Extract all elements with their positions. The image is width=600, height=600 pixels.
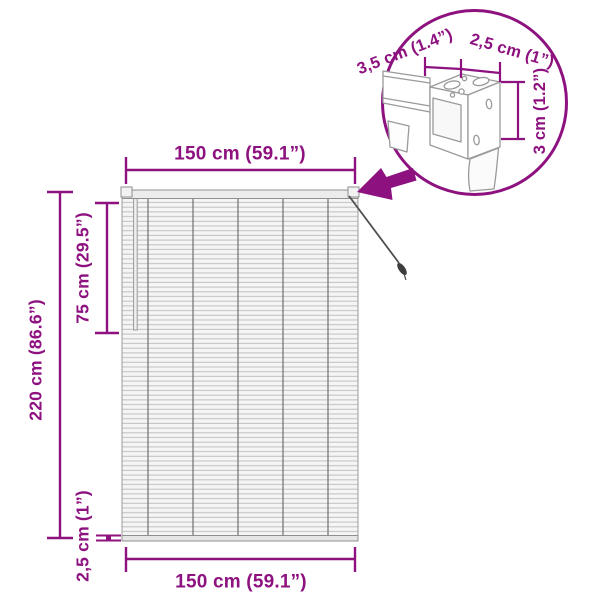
bottom-rail (122, 536, 358, 542)
dim-height-total (47, 192, 73, 538)
product-dimension-diagram: 150 cm (59.1”) 150 cm (59.1”) 220 cm (86… (0, 0, 600, 600)
label-bracket-height: 3 cm (1.2”) (532, 68, 549, 155)
bracket-top-hole-small-3 (450, 93, 454, 97)
dim-cord-length (95, 203, 119, 333)
bracket-side-hole-bottom (473, 135, 480, 145)
bracket-top-hole-small-2 (459, 89, 464, 94)
bracket-right-face (468, 82, 500, 159)
left-corner-bracket (121, 187, 132, 197)
detail-arrow-icon (357, 168, 417, 200)
label-bottom-rail-height: 2,5 cm (1”) (74, 490, 92, 582)
dim-bracket-height (501, 82, 525, 139)
blind-drawing (121, 187, 409, 541)
label-cord-length: 75 cm (29.5”) (74, 212, 92, 324)
dim-width-bottom (126, 547, 355, 572)
cord-tassel (395, 261, 408, 276)
tilt-wand (134, 198, 138, 330)
label-height-total: 220 cm (86.6”) (27, 299, 45, 420)
bracket-side-hole-top (486, 99, 493, 109)
label-width-top: 150 cm (59.1”) (174, 145, 306, 164)
inset-rail-tab (388, 121, 409, 152)
blind-slats (122, 198, 358, 536)
bracket-front-recess (433, 98, 461, 142)
label-width-bottom: 150 cm (59.1”) (175, 573, 307, 592)
head-rail (122, 190, 358, 199)
bracket-top-hole-small-1 (462, 76, 466, 80)
